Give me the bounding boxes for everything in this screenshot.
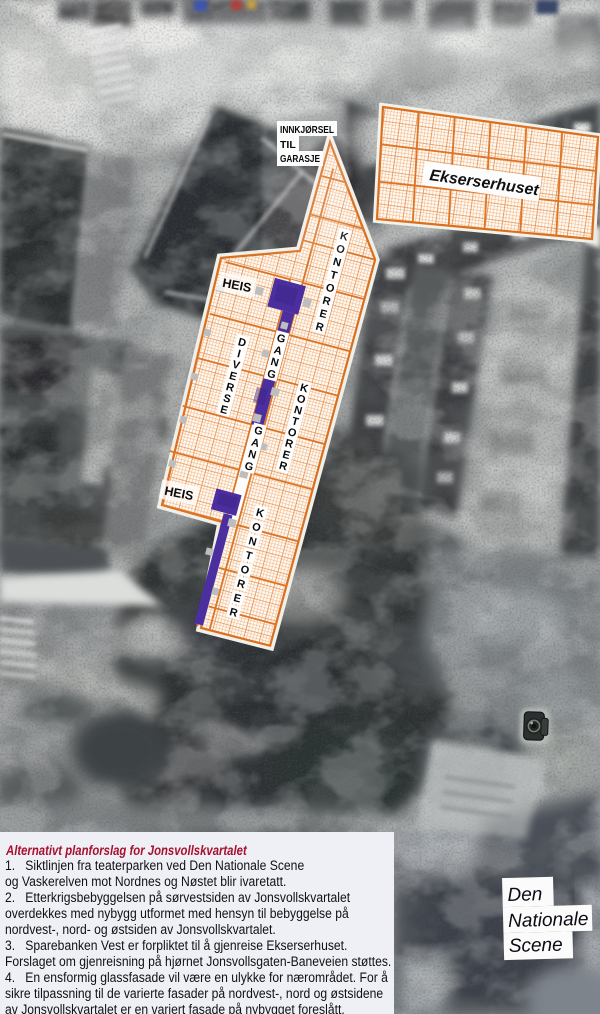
svg-text:Nationale: Nationale [508, 909, 589, 932]
svg-text:GARASJE: GARASJE [280, 153, 320, 165]
svg-text:Den: Den [507, 884, 542, 906]
svg-text:Scene: Scene [509, 935, 563, 957]
svg-text:TIL: TIL [280, 139, 296, 151]
svg-text:INNKJØRSEL: INNKJØRSEL [280, 124, 334, 136]
